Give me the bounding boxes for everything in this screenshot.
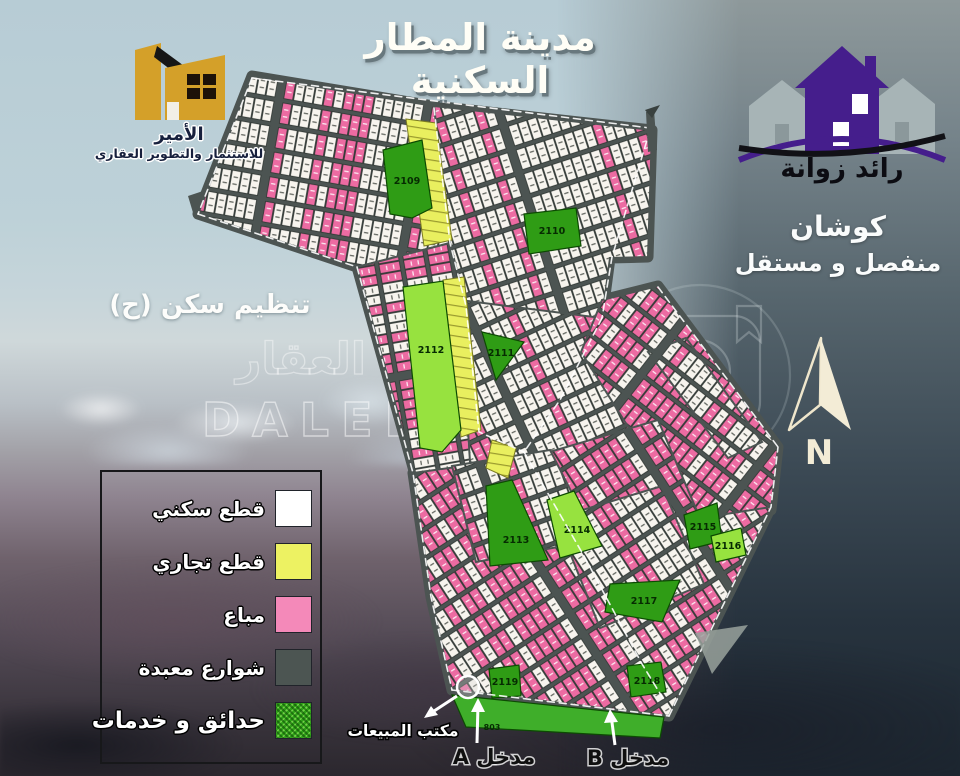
sales-office-marker: [457, 676, 479, 698]
legend-item-residential: قطع سكني: [106, 482, 312, 535]
legend-item-parks: حدائق و خدمات: [106, 694, 312, 747]
entrance-a-label: مدخل A: [453, 745, 536, 769]
legend-label: مباع: [223, 603, 265, 627]
sales-office-arrow: [431, 696, 457, 713]
legend-swatch-parks: [275, 702, 312, 739]
park-block-label: 2113: [503, 535, 529, 546]
legend-item-sold: مباع: [106, 588, 312, 641]
legend-label: شوارع معبدة: [139, 656, 265, 680]
legend-swatch-sold: [275, 596, 312, 633]
park-block-label: 2118: [634, 676, 661, 687]
park-block-label: 803: [484, 723, 501, 732]
amir-tagline: للاستثمار والتطوير العقاري: [84, 146, 274, 161]
page-title: مدينة المطار السكنية: [290, 16, 670, 102]
legend-swatch-commercial: [275, 543, 312, 580]
park-block-label: 2116: [715, 541, 742, 552]
entrance-b-label: مدخل B: [587, 746, 669, 770]
sales-office-label: مكتب المبيعات: [347, 722, 458, 740]
park-block-label: 2117: [631, 596, 657, 607]
entrance-apron: [695, 625, 748, 674]
raed-houses-icon: [737, 36, 947, 164]
deed-note: كوشان منفصل و مستقل: [728, 210, 948, 277]
logo-amir: الأمير للاستثمار والتطوير العقاري: [84, 34, 274, 161]
legend-swatch-streets: [275, 649, 312, 686]
park-block-label: 2115: [690, 522, 716, 533]
north-label: N: [805, 433, 833, 473]
park-block-label: 2111: [488, 348, 514, 359]
deed-note-line1: كوشان: [728, 210, 948, 243]
legend-label: قطع سكني: [152, 497, 265, 521]
poster: العقار DALEEL 21092110211121122113211421…: [0, 0, 960, 776]
zone-note: تنظيم سكن (ح): [100, 290, 320, 320]
legend: قطع سكني قطع تجاري مباع شوارع معبدة حدائ…: [100, 470, 322, 764]
legend-item-commercial: قطع تجاري: [106, 535, 312, 588]
park-block-label: 2109: [394, 176, 420, 187]
park-block-label: 2119: [492, 677, 518, 688]
amir-building-icon: [127, 34, 231, 122]
legend-label: قطع تجاري: [153, 550, 265, 574]
deed-note-line2: منفصل و مستقل: [728, 249, 948, 277]
watermark-arabic: العقار: [234, 334, 366, 385]
logo-raed: رائد زوانة: [732, 36, 952, 184]
amir-name: الأمير: [84, 124, 274, 145]
north-arrow-icon: [789, 338, 851, 430]
park-block-label: 2112: [418, 345, 444, 356]
park-block-label: 2110: [539, 226, 566, 237]
legend-swatch-residential: [275, 490, 312, 527]
legend-item-streets: شوارع معبدة: [106, 641, 312, 694]
sales-office-arrowhead: [424, 706, 438, 718]
legend-label: حدائق و خدمات: [92, 708, 265, 734]
